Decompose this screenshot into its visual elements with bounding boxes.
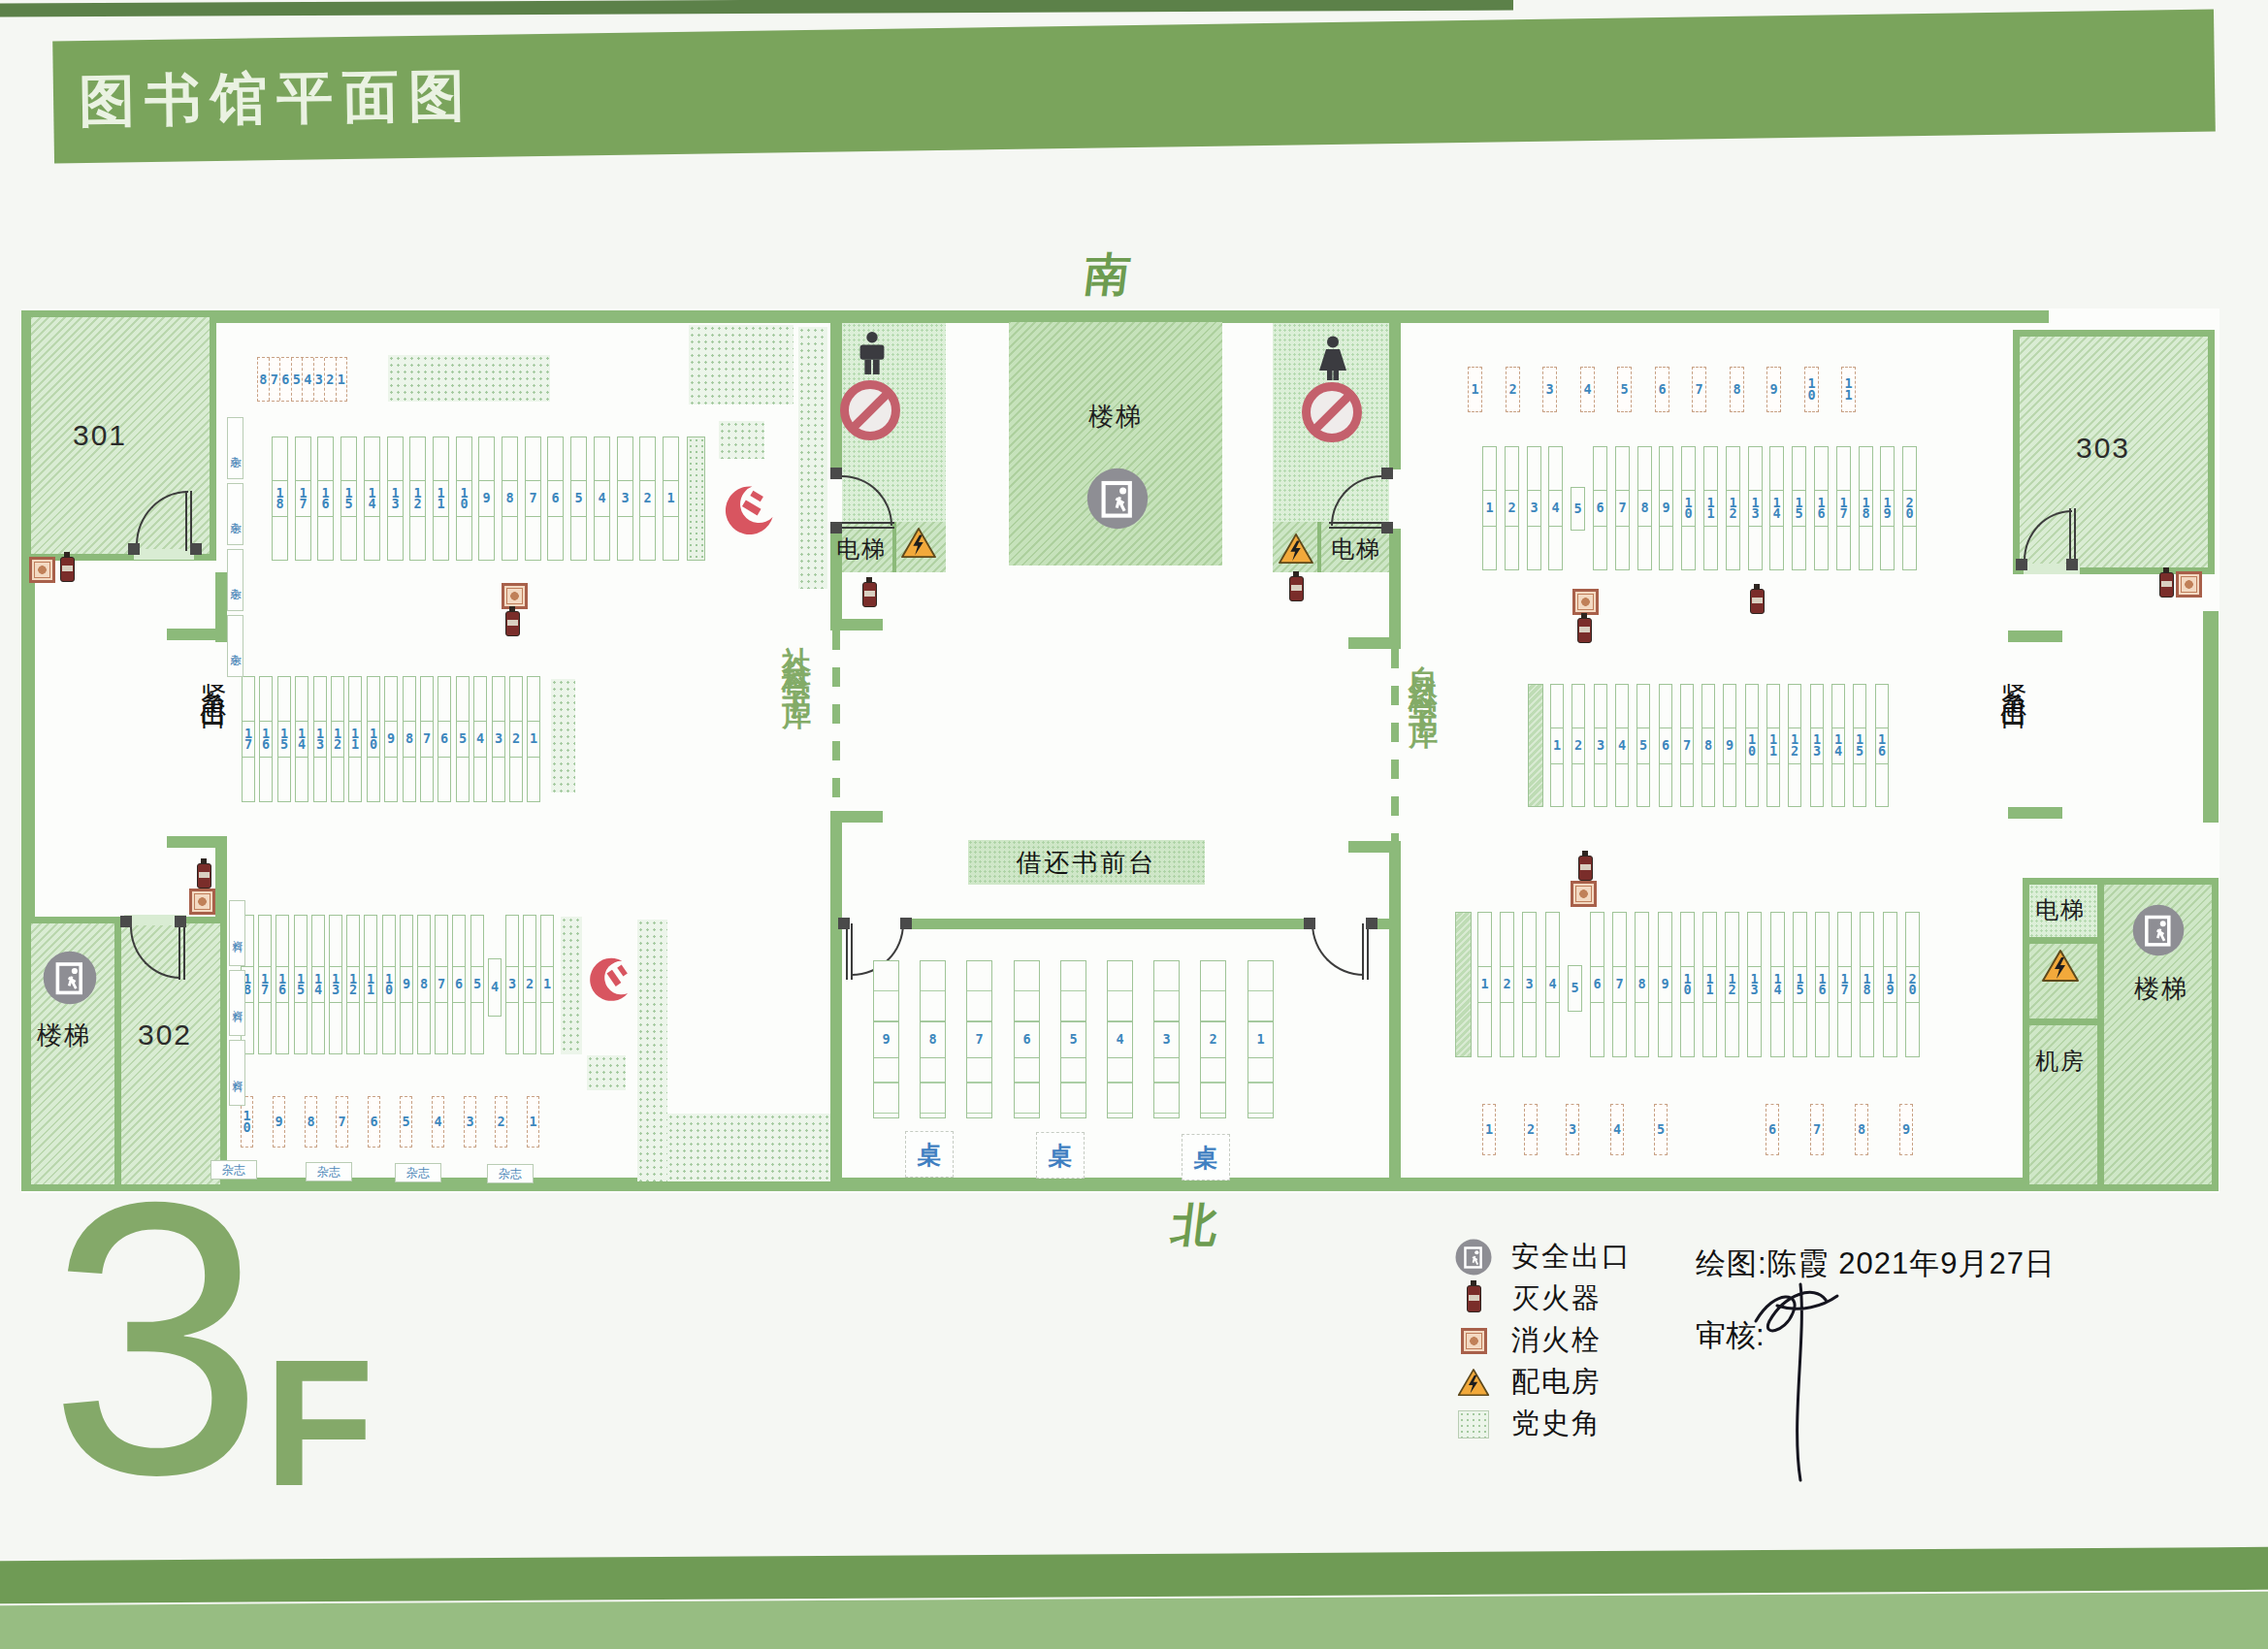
bookshelf-social-row1-18: 18 (272, 436, 288, 561)
magazine-rack: 杂志 (487, 1164, 534, 1183)
party-corner-area (667, 1114, 830, 1181)
direction-north: 北 (1168, 1195, 1221, 1256)
bookshelf-natural-row2-16: 16 (1875, 684, 1889, 807)
bookshelf-natural-row3-3: 3 (1522, 912, 1537, 1057)
bookshelf-natural-row4-8: 8 (1855, 1104, 1868, 1155)
direction-south: 南 (1081, 244, 1134, 306)
bookshelf-natural-row2-10: 10 (1745, 684, 1759, 807)
legend-row-safety-exit: 安全出口 (1453, 1240, 1632, 1275)
reading-table-1: 桌 (905, 1131, 954, 1178)
door-pivot (128, 543, 140, 555)
wall-west-block-h2 (2029, 1018, 2097, 1025)
bookshelf-social-row1-8: 8 (502, 436, 518, 561)
power-room-icon (1453, 1368, 1494, 1398)
fire-hydrant-icon (502, 583, 528, 609)
bookshelf-social-row1-3: 3 (617, 436, 633, 561)
fire-extinguisher-icon (1577, 618, 1592, 643)
bookshelf-natural-row3-4: 4 (1545, 912, 1560, 1057)
party-corner-area (689, 325, 794, 404)
bookshelf-natural-row2-11: 11 (1766, 684, 1780, 807)
bookshelf-natural-row1-19: 19 (1880, 446, 1895, 570)
bookshelf-social-row1-10: 10 (456, 436, 472, 561)
bookshelf-social-row2-12: 12 (331, 676, 344, 802)
room-301-number: 301 (73, 419, 127, 452)
materials-rack: 资料 (229, 1040, 245, 1106)
east-stairs-label: 楼梯 (37, 1018, 91, 1052)
rack-label: 杂志 (228, 447, 243, 449)
bookshelf-natural-row1-11: 11 (1703, 446, 1718, 570)
door-pivot (190, 543, 202, 555)
rack-cell: 3 (314, 358, 326, 401)
elevator-right-label: 电梯 (1331, 533, 1381, 565)
elevator-left-divider (892, 522, 896, 572)
bookshelf-social-row4-1: 1 (527, 1096, 539, 1148)
bookshelf-natural-row1-12: 12 (1726, 446, 1740, 570)
bookshelf-natural-row4-3: 3 (1566, 1104, 1579, 1155)
door-leaf-readingroom-right (1362, 923, 1369, 980)
wall-hall-left-c (830, 823, 842, 1191)
fire-extinguisher-icon (862, 582, 877, 607)
bookshelf-reading-room-3: 3 (1153, 960, 1180, 1118)
bookshelf-social-row1-9: 9 (478, 436, 495, 561)
bookshelf-natural-row1-20: 20 (1902, 446, 1917, 570)
bookshelf-natural-row3-14: 14 (1770, 912, 1785, 1057)
bookshelf-social-row1-15: 15 (340, 436, 357, 561)
wall-west-block-divider (2097, 885, 2104, 1184)
magazine-rack: 杂志 (227, 549, 243, 611)
bookshelf-social-row3-5: 5 (470, 915, 484, 1054)
bookshelf-natural-row3-12: 12 (1725, 912, 1739, 1057)
door-pivot (1304, 918, 1315, 929)
female-icon (1312, 336, 1354, 380)
bookshelf-natural-row2-13: 13 (1810, 684, 1824, 807)
rack-cell: 5 (292, 358, 304, 401)
party-emblem-icon (584, 953, 636, 1008)
bookshelf-social-row4-9: 9 (273, 1096, 285, 1148)
bookshelf-social-row2-5: 5 (456, 676, 470, 802)
rack-label: 杂志 (228, 645, 243, 647)
wall-east-l1-h (167, 629, 227, 640)
door-pivot (120, 916, 132, 927)
machine-room-label: 机房 (2035, 1046, 2086, 1077)
rack-cell: 7 (270, 358, 281, 401)
bookshelf-natural-row0-1: 1 (1468, 367, 1482, 412)
bookshelf-natural-row1-15: 15 (1792, 446, 1806, 570)
wall-west-stub1 (2008, 630, 2062, 642)
bookshelf-natural-row3-17: 17 (1837, 912, 1852, 1057)
bookshelf-natural-row3-15: 15 (1793, 912, 1807, 1057)
power-room-icon (2041, 949, 2080, 984)
bookshelf-social-row3-9: 9 (400, 915, 413, 1054)
bookshelf-natural-row1-6: 6 (1593, 446, 1607, 570)
bookshelf-special-1 (1528, 684, 1543, 807)
rack-label: 杂志 (228, 513, 243, 515)
legend-row-hydrant: 消火栓 (1453, 1323, 1632, 1358)
bookshelf-natural-row1-13: 13 (1748, 446, 1763, 570)
party-corner-area (551, 679, 575, 792)
room-303-number: 303 (2076, 432, 2130, 465)
fire-hydrant-icon (2176, 571, 2202, 598)
materials-rack: 资料 (229, 970, 245, 1036)
bookshelf-natural-row2-8: 8 (1701, 684, 1715, 807)
bookshelf-natural-row0-10: 10 (1804, 367, 1819, 412)
wall-hall-left-a (830, 310, 842, 472)
fire-hydrant-icon (1453, 1328, 1494, 1354)
borrow-return-counter: 借还书前台 (968, 840, 1205, 885)
bookshelf-social-row3-3: 3 (505, 915, 519, 1054)
bookshelf-social-row2-7: 7 (420, 676, 434, 802)
bookshelf-social-row2-4: 4 (473, 676, 487, 802)
power-room-icon (1278, 533, 1314, 566)
door-leaf-womens-wc (1329, 522, 1381, 529)
bookshelf-social-row1-13: 13 (387, 436, 404, 561)
wall-hall-right-stub1 (1348, 637, 1401, 649)
bookshelf-natural-row2-5: 5 (1636, 684, 1650, 807)
wall-west-block-h1 (2029, 937, 2097, 944)
door-leaf-302 (178, 923, 185, 980)
wall-hall-left-dashed (832, 630, 840, 811)
elevator-left-label: 电梯 (836, 533, 887, 565)
bookshelf-natural-row0-7: 7 (1692, 367, 1706, 412)
door-pivot (830, 468, 842, 479)
bookshelf-natural-row4-5: 5 (1654, 1104, 1668, 1155)
bookshelf-social-row4-4: 4 (432, 1096, 444, 1148)
bookshelf-reading-room-5: 5 (1060, 960, 1086, 1118)
bookshelf-natural-row3-6: 6 (1590, 912, 1604, 1057)
floor-suffix: F (264, 1348, 373, 1499)
reviewer-signature (1742, 1277, 1878, 1509)
door-leaf-303 (2069, 508, 2076, 565)
rack-cell: 8 (258, 358, 270, 401)
bookshelf-social-row2-8: 8 (403, 676, 416, 802)
bookshelf-natural-row3-19: 19 (1883, 912, 1897, 1057)
rack-label: 杂志 (499, 1166, 522, 1182)
party-corner-area (587, 1055, 626, 1090)
door-leaf-301 (185, 491, 192, 551)
wall-hall-left-stub1 (830, 619, 883, 630)
legend-label: 灭火器 (1511, 1279, 1602, 1318)
rack-cell: 4 (303, 358, 314, 401)
bookshelf-social-row2-15: 15 (277, 676, 291, 802)
party-corner-area (719, 421, 764, 459)
legend-label: 消火栓 (1511, 1321, 1602, 1360)
magazine-rack: 杂志 (227, 615, 243, 677)
safety-exit-icon (43, 951, 97, 1005)
bookshelf-natural-row3-16: 16 (1815, 912, 1830, 1057)
bookshelf-special-2 (1455, 912, 1472, 1057)
bookshelf-social-row4-7: 7 (336, 1096, 348, 1148)
party-corner-area (561, 917, 582, 1054)
room-302-number: 302 (138, 1018, 192, 1051)
bookshelf-natural-row2-7: 7 (1680, 684, 1694, 807)
bookshelf-natural-row1-1: 1 (1482, 446, 1497, 570)
bookshelf-natural-row4-6: 6 (1766, 1104, 1779, 1155)
no-entry-icon (1302, 382, 1362, 442)
power-room-icon (900, 527, 937, 560)
bookshelf-natural-row3-20: 20 (1905, 912, 1920, 1057)
bookshelf-natural-row2-4: 4 (1615, 684, 1629, 807)
fire-hydrant-icon (29, 557, 55, 583)
bookshelf-social-row3-2: 2 (523, 915, 536, 1054)
legend-row-party-corner: 党史角 (1453, 1406, 1632, 1441)
door-leaf-readingroom-left (846, 923, 853, 980)
bookshelf-reading-room-6: 6 (1014, 960, 1040, 1118)
bookshelf-natural-row2-6: 6 (1659, 684, 1672, 807)
bookshelf-social-row3-11: 11 (364, 915, 377, 1054)
safety-exit-icon (1086, 468, 1149, 530)
bookshelf-social-row1-11: 11 (433, 436, 449, 561)
rack-label: 杂志 (317, 1164, 340, 1180)
magazine-rack: 杂志 (227, 417, 243, 479)
bookshelf-reading-room-8: 8 (920, 960, 946, 1118)
party-corner-area (798, 327, 827, 589)
page-title: 图书馆平面图 (79, 58, 475, 140)
bookshelf-natural-row0-9: 9 (1766, 367, 1781, 412)
bookshelf-social-row2-14: 14 (295, 676, 308, 802)
bookshelf-natural-row2-14: 14 (1831, 684, 1845, 807)
bookshelf-social-row2-2: 2 (509, 676, 523, 802)
fire-extinguisher-icon (1289, 576, 1304, 601)
rack-label: 资料 (230, 1002, 244, 1004)
bookshelf-natural-row2-9: 9 (1723, 684, 1736, 807)
bookshelf-natural-row4-4: 4 (1610, 1104, 1624, 1155)
bookshelf-natural-row4-1: 1 (1482, 1104, 1496, 1155)
safety-exit-icon (1453, 1239, 1494, 1276)
bookshelf-social-row1-14: 14 (364, 436, 380, 561)
door-pivot (1366, 918, 1377, 929)
magazine-rack: 杂志 (227, 483, 243, 545)
bookshelf-natural-row1-18: 18 (1859, 446, 1873, 570)
title-banner: 图书馆平面图 (52, 9, 2216, 163)
bookshelf-natural-row3-1: 1 (1477, 912, 1492, 1057)
bookshelf-social-row4-2: 2 (495, 1096, 507, 1148)
fire-extinguisher-icon (197, 863, 211, 889)
rack-label: 杂志 (406, 1165, 430, 1181)
bookshelf-top-rack: 87654321 (257, 357, 347, 402)
bookshelf-social-row3-4: 4 (488, 958, 502, 1017)
library-floorplan-page: { "header": {"title": "图书馆平面图"}, "floor"… (0, 0, 2268, 1649)
bookshelf-social-row2-11: 11 (348, 676, 362, 802)
door-pivot (175, 916, 186, 927)
emergency-exit-west-label: 紧急出口 (1996, 662, 2031, 696)
emergency-exit-east-label: 紧急出口 (196, 662, 231, 696)
wall-hall-right-stub2 (1348, 841, 1401, 853)
bookshelf-natural-row1-14: 14 (1769, 446, 1784, 570)
door-pivot (1381, 522, 1393, 533)
bookshelf-natural-row3-5: 5 (1568, 965, 1582, 1012)
bookshelf-social-row1-1: 1 (663, 436, 679, 561)
bookshelf-natural-row3-8: 8 (1635, 912, 1649, 1057)
bookshelf-special-0 (687, 436, 705, 561)
bookshelf-social-row1-2: 2 (639, 436, 656, 561)
bookshelf-natural-row1-16: 16 (1814, 446, 1829, 570)
male-icon (852, 330, 892, 376)
legend-row-power-room: 配电房 (1453, 1365, 1632, 1400)
bookshelf-reading-room-7: 7 (966, 960, 992, 1118)
floor-label: 3F (49, 1179, 373, 1499)
bookshelf-social-row3-1: 1 (540, 915, 554, 1054)
bookshelf-social-row3-10: 10 (382, 915, 396, 1054)
bookshelf-social-row2-16: 16 (259, 676, 273, 802)
legend-row-extinguisher: 灭火器 (1453, 1281, 1632, 1316)
bookshelf-natural-row4-9: 9 (1899, 1104, 1913, 1155)
bookshelf-social-row4-8: 8 (305, 1096, 317, 1148)
door-leaf-mens-wc (842, 522, 894, 529)
bookshelf-social-row3-13: 13 (329, 915, 342, 1054)
reading-table-2: 桌 (1036, 1132, 1085, 1179)
bookshelf-social-row1-4: 4 (594, 436, 610, 561)
wall-readingroom-top (908, 919, 1315, 929)
wall-west-stub2 (2008, 807, 2062, 819)
legend-label: 配电房 (1511, 1363, 1602, 1402)
fire-extinguisher-icon (1750, 589, 1765, 614)
bookshelf-natural-row2-15: 15 (1853, 684, 1866, 807)
bookshelf-natural-row1-17: 17 (1836, 446, 1851, 570)
bookshelf-social-row3-17: 17 (258, 915, 272, 1054)
bookshelf-natural-row4-7: 7 (1810, 1104, 1824, 1155)
bookshelf-social-row2-13: 13 (313, 676, 327, 802)
fire-extinguisher-icon (1453, 1285, 1494, 1312)
no-entry-icon (840, 380, 900, 440)
bookshelf-natural-row3-10: 10 (1680, 912, 1695, 1057)
fire-hydrant-icon (189, 889, 215, 915)
west-stairs-label: 楼梯 (2134, 972, 2188, 1006)
rack-cell: 2 (325, 358, 337, 401)
bookshelf-natural-row2-2: 2 (1571, 684, 1585, 807)
wall-hall-right-c (1389, 853, 1401, 1191)
bookshelf-natural-row3-9: 9 (1658, 912, 1672, 1057)
bookshelf-reading-room-9: 9 (873, 960, 899, 1118)
bookshelf-natural-row1-5: 5 (1571, 487, 1585, 531)
safety-exit-icon (2132, 904, 2185, 956)
bookshelf-reading-room-1: 1 (1247, 960, 1274, 1118)
bookshelf-social-row4-3: 3 (464, 1096, 476, 1148)
fire-hydrant-icon (1571, 881, 1597, 907)
bookshelf-natural-row4-2: 2 (1524, 1104, 1538, 1155)
bookshelf-natural-row0-5: 5 (1617, 367, 1632, 412)
bookshelf-social-row1-16: 16 (317, 436, 334, 561)
bookshelf-social-row3-15: 15 (294, 915, 308, 1054)
bookshelf-social-row1-5: 5 (570, 436, 587, 561)
party-corner-area (388, 355, 550, 402)
bookshelf-social-row3-16: 16 (275, 915, 289, 1054)
bookshelf-social-row3-12: 12 (346, 915, 360, 1054)
reading-table-3: 桌 (1182, 1134, 1230, 1180)
elevator-right-divider (1317, 522, 1321, 572)
bookshelf-social-row1-12: 12 (409, 436, 426, 561)
bookshelf-natural-row3-2: 2 (1500, 912, 1514, 1057)
bookshelf-natural-row3-13: 13 (1747, 912, 1762, 1057)
bookshelf-social-row4-5: 5 (400, 1096, 412, 1148)
legend: 安全出口 灭火器 消火栓 配电房 党史角 (1453, 1240, 1632, 1441)
rack-label: 资料 (230, 932, 244, 934)
fire-extinguisher-icon (505, 611, 520, 636)
fire-extinguisher-icon (60, 557, 75, 582)
bookshelf-natural-row1-10: 10 (1681, 446, 1696, 570)
bookshelf-natural-row1-2: 2 (1505, 446, 1519, 570)
credits: 绘图:陈霞 2021年9月27日 审核: (1696, 1244, 2056, 1284)
party-history-corner-icon (1453, 1410, 1494, 1439)
wall-hall-right-b (1389, 529, 1401, 637)
wall-west-outer (2203, 611, 2219, 823)
bookshelf-natural-row0-3: 3 (1542, 367, 1557, 412)
bookshelf-natural-row2-12: 12 (1788, 684, 1801, 807)
bookshelf-natural-row1-9: 9 (1659, 446, 1673, 570)
bookshelf-natural-row1-8: 8 (1637, 446, 1652, 570)
bookshelf-natural-row3-7: 7 (1612, 912, 1627, 1057)
social-science-stacks-label: 社会科学书库 (776, 623, 816, 687)
fire-extinguisher-icon (2159, 572, 2174, 598)
magazine-rack: 杂志 (395, 1163, 441, 1182)
bookshelf-natural-row1-7: 7 (1615, 446, 1630, 570)
bookshelf-natural-row3-18: 18 (1860, 912, 1874, 1057)
bookshelf-social-row3-7: 7 (435, 915, 448, 1054)
bookshelf-natural-row0-4: 4 (1580, 367, 1595, 412)
bookshelf-reading-room-2: 2 (1200, 960, 1226, 1118)
bookshelf-social-row3-14: 14 (311, 915, 325, 1054)
bookshelf-social-row3-6: 6 (452, 915, 466, 1054)
bookshelf-social-row1-7: 7 (525, 436, 541, 561)
door-pivot (830, 522, 842, 533)
bookshelf-natural-row0-8: 8 (1730, 367, 1744, 412)
bookshelf-social-row2-6: 6 (437, 676, 451, 802)
rack-label: 杂志 (228, 579, 243, 581)
bookshelf-social-row2-3: 3 (492, 676, 505, 802)
door-pivot (2066, 559, 2078, 570)
bookshelf-natural-row2-1: 1 (1550, 684, 1564, 807)
door-pivot (1381, 468, 1393, 479)
bookshelf-social-row2-9: 9 (384, 676, 398, 802)
rack-cell: 6 (280, 358, 292, 401)
door-pivot (2016, 559, 2027, 570)
bookshelf-natural-row0-2: 2 (1506, 367, 1520, 412)
wall-hall-left-stub2 (830, 811, 883, 823)
door-pivot (838, 918, 850, 929)
wall-hall-right-dashed (1391, 649, 1399, 841)
bookshelf-social-row2-17: 17 (242, 676, 255, 802)
door-pivot (900, 918, 912, 929)
bookshelf-social-row4-6: 6 (368, 1096, 380, 1148)
bookshelf-reading-room-4: 4 (1107, 960, 1133, 1118)
bookshelf-natural-row1-3: 3 (1527, 446, 1541, 570)
fire-extinguisher-icon (1578, 856, 1593, 881)
bookshelf-social-row1-17: 17 (295, 436, 311, 561)
floor-number: 3 (49, 1179, 264, 1499)
legend-label: 党史角 (1511, 1405, 1602, 1443)
rack-label: 资料 (230, 1072, 244, 1074)
scan-top-edge (0, 0, 1513, 16)
legend-label: 安全出口 (1511, 1238, 1632, 1277)
party-corner-area (637, 920, 667, 1181)
bookshelf-natural-row1-4: 4 (1548, 446, 1563, 570)
bookshelf-natural-row2-3: 3 (1594, 684, 1607, 807)
fire-hydrant-icon (1572, 589, 1599, 615)
rack-cell: 1 (337, 358, 347, 401)
bookshelf-natural-row0-11: 11 (1841, 367, 1856, 412)
west-elevator-label: 电梯 (2035, 894, 2086, 925)
bookshelf-natural-row3-11: 11 (1702, 912, 1717, 1057)
bookshelf-social-row3-8: 8 (417, 915, 431, 1054)
wall-hall-right-a (1389, 310, 1401, 469)
bookshelf-social-row1-6: 6 (547, 436, 564, 561)
bookshelf-social-row2-1: 1 (527, 676, 540, 802)
central-stairs-label: 楼梯 (1088, 400, 1143, 434)
materials-rack: 资料 (229, 900, 245, 966)
bookshelf-natural-row0-6: 6 (1655, 367, 1669, 412)
natural-science-stacks-label: 自然科学书库 (1403, 642, 1442, 706)
bookshelf-social-row2-10: 10 (367, 676, 380, 802)
